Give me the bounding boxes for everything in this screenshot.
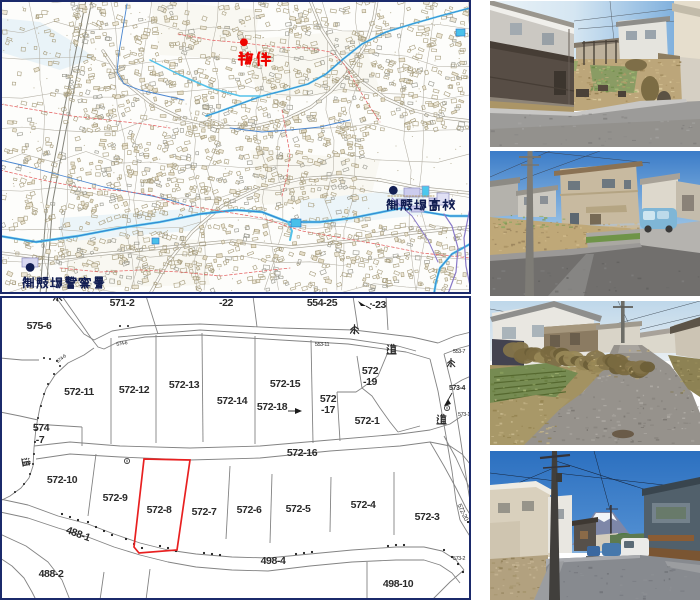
- svg-text:-22: -22: [219, 297, 234, 309]
- svg-text:574: 574: [33, 422, 50, 434]
- svg-text:572-9: 572-9: [103, 492, 128, 504]
- svg-text:575-6: 575-6: [27, 320, 52, 332]
- svg-text:-7: -7: [36, 434, 45, 446]
- svg-text:572-13: 572-13: [169, 379, 200, 391]
- svg-text:-23: -23: [372, 299, 387, 311]
- svg-text:572-1: 572-1: [355, 415, 380, 427]
- svg-text:573-1: 573-1: [458, 412, 470, 418]
- svg-text:572-8: 572-8: [147, 504, 172, 516]
- svg-text:-19: -19: [363, 376, 378, 388]
- svg-text:572-3: 572-3: [415, 511, 440, 523]
- svg-text:572-14: 572-14: [217, 395, 248, 407]
- svg-text:573-2: 573-2: [453, 556, 465, 562]
- svg-text:-17: -17: [321, 404, 336, 416]
- svg-text:488-2: 488-2: [39, 568, 64, 580]
- svg-text:571-2: 571-2: [110, 297, 135, 309]
- svg-text:498-10: 498-10: [383, 578, 414, 590]
- svg-text:572-15: 572-15: [270, 378, 301, 390]
- svg-text:553-7: 553-7: [453, 349, 465, 355]
- svg-text:554-25: 554-25: [307, 297, 338, 309]
- svg-text:572-4: 572-4: [351, 499, 376, 511]
- svg-text:572-10: 572-10: [47, 474, 78, 486]
- svg-text:572-7: 572-7: [192, 506, 217, 518]
- svg-text:572-6: 572-6: [237, 504, 262, 516]
- svg-text:572-18: 572-18: [257, 401, 288, 413]
- svg-text:553-11: 553-11: [315, 342, 330, 348]
- svg-text:572-16: 572-16: [287, 447, 318, 459]
- svg-text:573-4: 573-4: [449, 385, 465, 392]
- svg-text:572-12: 572-12: [119, 384, 150, 396]
- svg-text:572-11: 572-11: [64, 386, 94, 398]
- svg-text:572-5: 572-5: [286, 503, 311, 515]
- svg-text:498-4: 498-4: [261, 555, 286, 567]
